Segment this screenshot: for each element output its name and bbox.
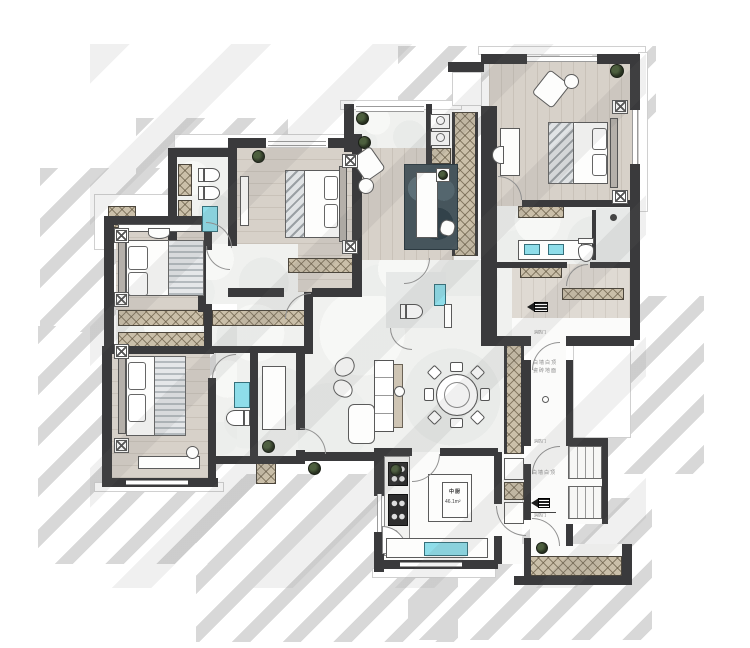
pillow — [128, 246, 148, 270]
wall — [566, 524, 573, 546]
vanity-stool — [492, 146, 504, 164]
plant-icon — [438, 170, 448, 180]
shelf — [240, 176, 249, 226]
bed-blanket — [168, 240, 204, 296]
pillow — [324, 204, 338, 228]
wall — [566, 360, 573, 444]
desk-study — [416, 172, 438, 238]
plant-icon — [356, 112, 369, 125]
lamp-icon — [615, 191, 626, 202]
wardrobe-dining-side — [504, 336, 524, 454]
terrace-edge — [452, 72, 482, 106]
door-station-icon — [534, 302, 548, 312]
wall — [208, 378, 216, 480]
wall — [296, 346, 305, 430]
wardrobe-bedroom-2 — [288, 258, 354, 273]
lamp-icon — [116, 346, 127, 357]
wardrobe-row-1-left — [118, 310, 204, 326]
lamp-icon — [116, 440, 127, 451]
wall — [440, 448, 498, 456]
window — [356, 106, 424, 112]
plant-icon — [252, 150, 265, 163]
shower-tray-long — [262, 366, 286, 430]
toilet-icon — [204, 168, 220, 182]
wall — [481, 336, 531, 346]
cabinet-laundry — [429, 148, 451, 164]
plant-icon — [390, 464, 402, 476]
terrace-edge — [372, 568, 496, 578]
bed-headboard — [118, 358, 126, 434]
kitchen-sink — [424, 542, 468, 556]
wall — [494, 536, 502, 564]
cabinet-master-bath — [518, 206, 564, 218]
window — [126, 480, 188, 485]
bed-blanket — [154, 356, 186, 436]
shower-icon — [610, 214, 617, 221]
lamp-icon — [116, 230, 127, 241]
side-table-round — [394, 386, 405, 397]
pillow — [128, 394, 146, 422]
wall — [622, 544, 632, 584]
sink-icon — [524, 244, 540, 255]
window — [632, 110, 638, 164]
wall — [208, 346, 304, 353]
plant-icon — [308, 462, 321, 475]
wall — [228, 288, 284, 297]
wall — [481, 106, 497, 342]
stove-icon — [388, 494, 408, 526]
wall — [602, 438, 608, 524]
wall — [524, 538, 531, 578]
side-table-round — [564, 74, 579, 89]
chaise — [348, 404, 375, 444]
fridge — [504, 458, 524, 480]
plant-icon — [610, 64, 624, 78]
wall — [630, 54, 640, 110]
ottoman — [186, 446, 199, 459]
wall — [630, 164, 640, 340]
toilet-icon — [406, 304, 423, 319]
stairs-lower-flight — [568, 486, 602, 519]
floor-hall — [497, 318, 630, 338]
wall — [514, 576, 632, 585]
sink-icon — [548, 244, 564, 255]
wall — [250, 352, 258, 458]
lamp-icon — [345, 241, 356, 252]
wall — [494, 452, 502, 504]
dining-table — [436, 374, 478, 416]
toilet-tank — [244, 410, 250, 426]
bed-master-headboard — [610, 118, 618, 188]
window — [268, 141, 326, 146]
lamp-icon — [345, 155, 356, 166]
window — [400, 562, 462, 567]
wall — [312, 288, 362, 297]
dryer-door-icon — [436, 133, 445, 142]
dining-chair — [450, 362, 463, 372]
pocket-door — [444, 304, 452, 328]
sink-icon — [234, 382, 250, 408]
sink-icon — [434, 284, 446, 306]
pillow — [592, 128, 607, 150]
lamp-icon — [116, 294, 127, 305]
bed-headboard — [339, 166, 347, 242]
cabinet-bath-shared-a — [178, 164, 192, 196]
bed-headboard — [118, 242, 126, 294]
pantry-hatch — [504, 482, 524, 500]
plant-icon — [262, 440, 275, 453]
wall — [448, 62, 484, 72]
wall — [590, 262, 634, 268]
wall — [208, 456, 302, 464]
exterior-landing-edge — [573, 340, 631, 438]
kitchen-area-label: 46.1m² — [445, 499, 469, 505]
bed-master-blanket — [548, 122, 574, 184]
entry-closet — [524, 556, 622, 576]
entry-direction-line — [530, 512, 556, 513]
entry-arrow-icon — [538, 498, 550, 508]
wall — [104, 216, 114, 320]
wall — [566, 336, 634, 346]
wall — [380, 448, 412, 456]
toilet-icon — [226, 410, 244, 426]
pillow — [128, 272, 148, 296]
wall — [204, 304, 212, 352]
wall-basin — [148, 228, 170, 239]
dining-chair — [480, 388, 490, 401]
washer-door-icon — [436, 116, 445, 125]
ottoman — [358, 178, 374, 194]
wall — [102, 346, 112, 486]
window — [527, 56, 597, 62]
pillow — [592, 154, 607, 176]
bidet-icon — [204, 186, 220, 200]
cabinet-shower-room — [256, 462, 276, 484]
wall — [481, 54, 527, 64]
kitchen-name-label: 中厨 — [442, 488, 468, 496]
wall — [524, 360, 531, 446]
wardrobe-closet-b — [562, 288, 624, 300]
wall — [168, 148, 234, 157]
pillow — [324, 176, 338, 200]
sofa — [374, 360, 394, 432]
wardrobe-row-2 — [118, 332, 206, 347]
lamp-icon — [615, 101, 626, 112]
wall — [497, 262, 567, 268]
dining-chair — [450, 418, 463, 428]
bed-blanket — [285, 170, 305, 238]
floor-plan-canvas: 中厨 46.1m² 白墙白顶 瓷砖地面 白墙白顶 消防门 消防门 消防门 — [0, 0, 750, 648]
fire-door-label: 消防门 — [534, 331, 546, 335]
door-knob — [542, 396, 549, 403]
pillow — [128, 362, 146, 390]
fire-door-label: 消防门 — [534, 440, 546, 444]
dining-chair — [424, 388, 434, 401]
stairs-upper-flight — [568, 446, 602, 479]
